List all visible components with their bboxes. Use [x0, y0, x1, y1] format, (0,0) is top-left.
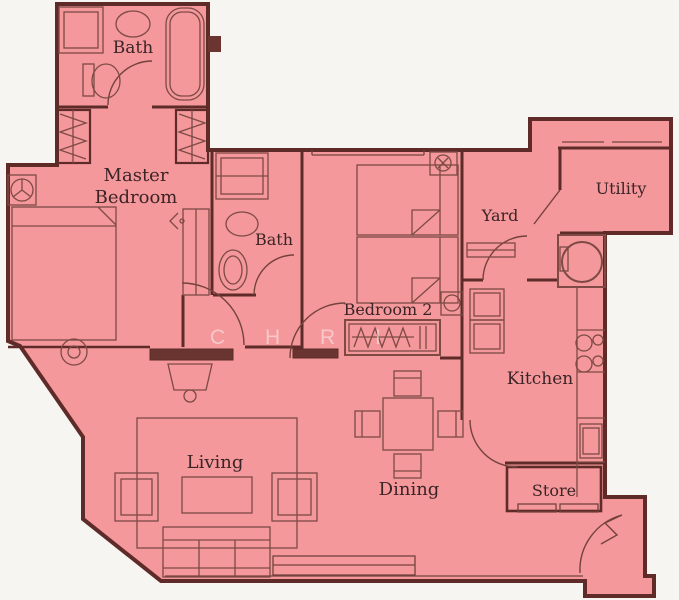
floor-outline: [8, 4, 671, 596]
room-label-kitchen: Kitchen: [507, 369, 573, 389]
room-label-yard: Yard: [481, 206, 519, 225]
wall-sill: [293, 349, 338, 358]
floor-plan-page: C H R I Bath Master Bedroom Bath Bedroom…: [0, 0, 679, 600]
room-label-master-line2: Bedroom: [95, 187, 178, 208]
room-label-bath-middle: Bath: [255, 230, 293, 249]
wall-notch: [208, 36, 221, 52]
room-label-utility: Utility: [596, 179, 647, 198]
room-label-bedroom2: Bedroom 2: [344, 300, 433, 319]
wall-sill: [150, 349, 233, 360]
room-label-dining: Dining: [379, 479, 440, 500]
watermark-text: C H R I: [210, 326, 398, 349]
room-label-bath-top: Bath: [113, 38, 153, 58]
room-label-living: Living: [187, 452, 244, 473]
room-label-master-line1: Master: [104, 165, 169, 186]
floor-plan-drawing: C H R I Bath Master Bedroom Bath Bedroom…: [0, 0, 679, 600]
room-label-store: Store: [532, 481, 576, 500]
